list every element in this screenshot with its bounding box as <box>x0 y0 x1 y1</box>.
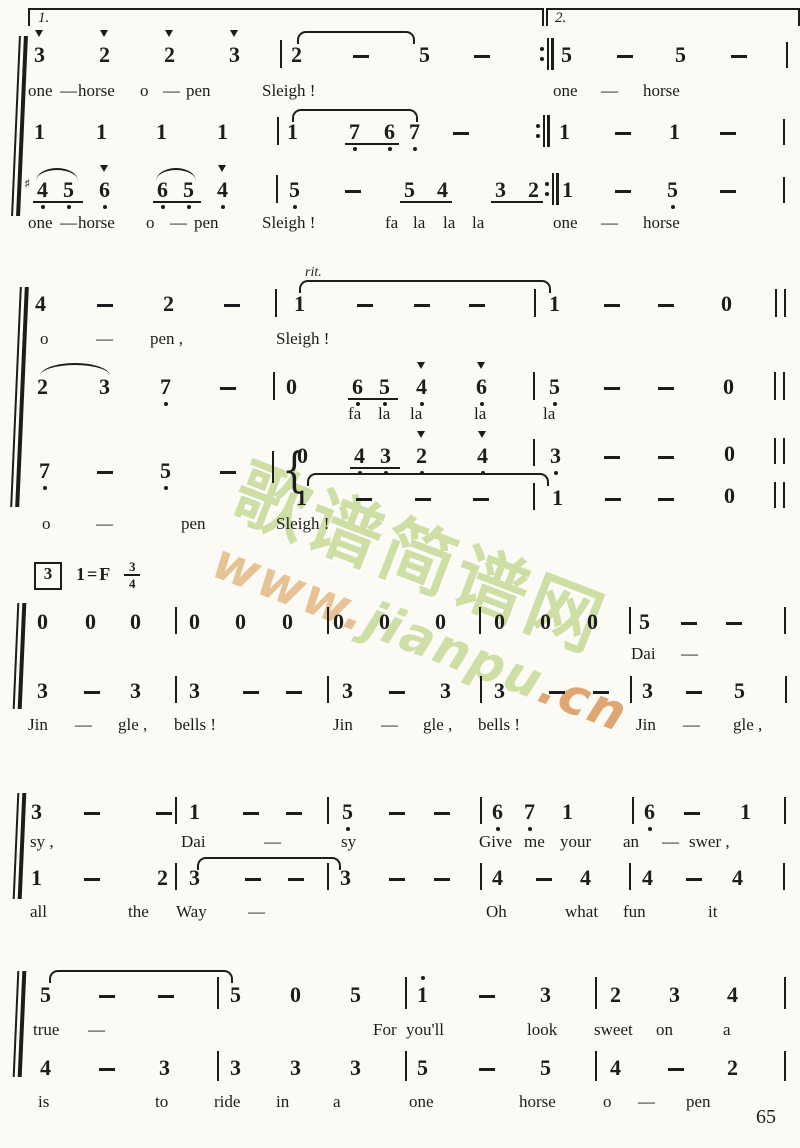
final-double-barline <box>775 289 786 317</box>
accent-mark <box>218 165 226 172</box>
sheet-page: { "page": {"number": "65", "background":… <box>0 0 800 1148</box>
accent-mark <box>417 431 425 438</box>
barline <box>480 676 482 703</box>
note-duration-dash <box>658 456 674 459</box>
barline <box>632 797 634 824</box>
repeat-barline <box>540 38 554 70</box>
note-duration-dash <box>434 812 450 815</box>
note-duration-dash <box>286 812 302 815</box>
note: 3 <box>98 376 111 398</box>
note: 4 <box>491 867 504 889</box>
barline <box>175 863 177 890</box>
note-duration-dash <box>686 878 702 881</box>
lyric: all <box>30 902 47 921</box>
note: 3 <box>158 1057 171 1079</box>
note: 7 <box>523 801 536 823</box>
lyric: gle , <box>118 715 147 734</box>
note-duration-dash <box>720 132 736 135</box>
lyric: — <box>638 1092 655 1111</box>
note-duration-dash <box>99 1068 115 1071</box>
note-duration-dash <box>353 55 369 58</box>
lyric: o <box>146 213 155 232</box>
note: 5 <box>378 376 391 398</box>
lyric: — <box>381 715 398 734</box>
lyric: to <box>155 1092 168 1111</box>
note-duration-dash <box>617 55 633 58</box>
lyric: a <box>333 1092 341 1111</box>
note: 5 <box>560 44 573 66</box>
note-duration-dash <box>479 995 495 998</box>
note: 4 <box>216 179 229 201</box>
lyric: Oh <box>486 902 507 921</box>
lyric: horse <box>519 1092 556 1111</box>
lyric: — <box>601 213 618 232</box>
note: 5 <box>733 680 746 702</box>
note-duration-dash <box>731 55 747 58</box>
note: 1 <box>558 121 571 143</box>
lyric: Jin <box>28 715 48 734</box>
note: 3 <box>341 680 354 702</box>
note: 1 <box>668 121 681 143</box>
note-duration-dash <box>658 304 674 307</box>
note: 3 <box>549 445 562 467</box>
note-duration-dash <box>720 190 736 193</box>
note-duration-dash <box>615 132 631 135</box>
accent-mark <box>230 30 238 37</box>
final-double-barline <box>774 482 785 508</box>
note-duration-dash <box>668 1068 684 1071</box>
note-duration-dash <box>345 190 361 193</box>
note: 3 <box>289 1057 302 1079</box>
note: 3 <box>36 680 49 702</box>
system-left-brace <box>10 287 20 507</box>
note: 5 <box>548 376 561 398</box>
score-canvas: 1.2.32232555one—horseo—penSleigh !one—ho… <box>0 0 800 1148</box>
note: 3 <box>668 984 681 1006</box>
note: 4 <box>476 445 489 467</box>
note: 6 <box>383 121 396 143</box>
note-duration-dash <box>473 498 489 501</box>
barline <box>217 1051 219 1081</box>
note-duration-dash <box>389 812 405 815</box>
accent-mark <box>417 362 425 369</box>
barline <box>783 863 785 890</box>
lyric: the <box>128 902 149 921</box>
lyric: la <box>413 213 425 232</box>
note: 0 <box>289 984 302 1006</box>
lyric: — <box>170 213 187 232</box>
note: 2 <box>36 376 49 398</box>
barline <box>405 1051 407 1081</box>
note: 5 <box>182 179 195 201</box>
barline <box>327 676 329 703</box>
note: 1 <box>216 121 229 143</box>
note-duration-dash <box>474 55 490 58</box>
barline <box>327 797 329 824</box>
note: 0 <box>722 376 735 398</box>
note: 4 <box>731 867 744 889</box>
lyric: Sleigh ! <box>276 514 329 533</box>
lyric: Sleigh ! <box>262 81 315 100</box>
eighth-note-beam <box>400 201 452 203</box>
note: 3 <box>188 680 201 702</box>
note-duration-dash <box>97 471 113 474</box>
barline <box>480 797 482 824</box>
system-left-brace <box>13 971 18 1077</box>
barline <box>272 451 274 483</box>
lyric: sy <box>341 832 356 851</box>
note-duration-dash <box>681 622 697 625</box>
tie-bracket <box>49 970 233 983</box>
note: 2 <box>726 1057 739 1079</box>
note: 2 <box>98 44 111 66</box>
barline <box>275 289 277 317</box>
lyric: me <box>524 832 545 851</box>
system-left-brace <box>11 36 19 216</box>
lyric: la <box>410 404 422 423</box>
lyric: — <box>264 832 281 851</box>
lyric: la <box>543 404 555 423</box>
barline <box>783 119 785 145</box>
note: 3 <box>30 801 43 823</box>
note-duration-dash <box>156 812 172 815</box>
lyric: la <box>378 404 390 423</box>
note: 5 <box>349 984 362 1006</box>
lyric: bells ! <box>174 715 216 734</box>
lyric: — <box>88 1020 105 1039</box>
note-duration-dash <box>84 691 100 694</box>
barline <box>175 607 177 634</box>
eighth-note-beam <box>345 143 399 145</box>
lyric: an <box>623 832 639 851</box>
barline <box>629 863 631 890</box>
lyric: — <box>163 81 180 100</box>
note: 7 <box>348 121 361 143</box>
tie-bracket <box>297 31 415 44</box>
barline <box>217 977 219 1009</box>
note: 3 <box>349 1057 362 1079</box>
lyric: la <box>474 404 486 423</box>
note: 0 <box>281 611 294 633</box>
note-duration-dash <box>99 995 115 998</box>
lyric: Dai <box>631 644 656 663</box>
note: 1 <box>188 801 201 823</box>
note: 4 <box>579 867 592 889</box>
note: 5 <box>666 179 679 201</box>
note-duration-dash <box>97 304 113 307</box>
note: 5 <box>638 611 651 633</box>
barline <box>273 372 275 400</box>
note-duration-dash <box>414 304 430 307</box>
lyric: pen <box>194 213 219 232</box>
note: 5 <box>403 179 416 201</box>
barline <box>786 42 788 68</box>
barline <box>784 797 786 824</box>
barline <box>534 289 536 317</box>
note-duration-dash <box>604 387 620 390</box>
lyric: pen , <box>150 329 183 348</box>
note: 3 <box>33 44 46 66</box>
lyric: gle , <box>423 715 452 734</box>
eighth-note-beam <box>350 467 400 469</box>
note-duration-dash <box>479 1068 495 1071</box>
note: 0 <box>188 611 201 633</box>
barline <box>784 977 786 1009</box>
note: 2 <box>527 179 540 201</box>
note: 4 <box>436 179 449 201</box>
lyric: — <box>601 81 618 100</box>
note: 4 <box>415 376 428 398</box>
barline <box>533 372 535 400</box>
note-duration-dash <box>220 471 236 474</box>
note-duration-dash <box>604 456 620 459</box>
accent-mark <box>100 30 108 37</box>
note: 2 <box>609 984 622 1006</box>
note-duration-dash <box>536 878 552 881</box>
tie-bracket <box>307 473 549 486</box>
barline <box>630 676 632 703</box>
lyric: is <box>38 1092 49 1111</box>
repeat-barline <box>536 115 550 147</box>
volta-1-label: 1. <box>38 11 49 26</box>
lyric: one <box>28 81 53 100</box>
note: 3 <box>188 867 201 889</box>
note: 1 <box>30 867 43 889</box>
barline <box>595 1051 597 1081</box>
note: 7 <box>159 376 172 398</box>
note: 2 <box>415 445 428 467</box>
barline <box>277 117 279 145</box>
note: 0 <box>296 445 309 467</box>
note: 5 <box>539 1057 552 1079</box>
note: 7 <box>408 121 421 143</box>
lyric: horse <box>78 213 115 232</box>
lyric: Sleigh ! <box>262 213 315 232</box>
eighth-note-beam <box>153 201 201 203</box>
note-duration-dash <box>288 878 304 881</box>
lyric: Sleigh ! <box>276 329 329 348</box>
lyric: fun <box>623 902 646 921</box>
lyric: — <box>662 832 679 851</box>
note: 1 <box>293 293 306 315</box>
system-left-brace <box>13 603 18 709</box>
note: 0 <box>84 611 97 633</box>
note-duration-dash <box>453 132 469 135</box>
lyric: gle , <box>733 715 762 734</box>
lyric: — <box>96 514 113 533</box>
note: 6 <box>98 179 111 201</box>
note: 1 <box>739 801 752 823</box>
note: 0 <box>129 611 142 633</box>
note: 3 <box>229 1057 242 1079</box>
lyric: what <box>565 902 598 921</box>
note-duration-dash <box>615 190 631 193</box>
note: 1 <box>561 801 574 823</box>
note-duration-dash <box>84 812 100 815</box>
note: 4♯ <box>36 179 49 201</box>
accent-mark <box>100 165 108 172</box>
note: 0 <box>720 293 733 315</box>
note: 1 <box>551 487 564 509</box>
note: 0 <box>285 376 298 398</box>
repeat-barline <box>545 173 559 205</box>
lyric: For <box>373 1020 397 1039</box>
lyric: o <box>140 81 149 100</box>
lyric: you'll <box>406 1020 444 1039</box>
note-duration-dash <box>389 878 405 881</box>
note: 2 <box>156 867 169 889</box>
note: 4 <box>726 984 739 1006</box>
note: 1 <box>33 121 46 143</box>
lyric: o <box>42 514 51 533</box>
note: 6 <box>351 376 364 398</box>
barline <box>175 797 177 824</box>
lyric: Dai <box>181 832 206 851</box>
note: 4 <box>641 867 654 889</box>
note-duration-dash <box>593 691 609 694</box>
lyric: — <box>683 715 700 734</box>
note-duration-dash <box>389 691 405 694</box>
note: 1 <box>416 984 429 1006</box>
lyric: your <box>560 832 591 851</box>
note: 1 <box>286 121 299 143</box>
lyric: — <box>96 329 113 348</box>
lyric: one <box>409 1092 434 1111</box>
volta-bracket <box>546 8 800 26</box>
note: 2 <box>163 44 176 66</box>
lyric: horse <box>643 81 680 100</box>
note: 5 <box>159 460 172 482</box>
lyric: pen <box>181 514 206 533</box>
note: 3 <box>539 984 552 1006</box>
lyric: look <box>527 1020 557 1039</box>
barline <box>175 676 177 703</box>
sharp-icon: ♯ <box>24 178 30 191</box>
note: 3 <box>379 445 392 467</box>
note: 5 <box>288 179 301 201</box>
barline <box>533 483 535 510</box>
accent-mark <box>165 30 173 37</box>
barline <box>783 177 785 203</box>
barline <box>479 607 481 634</box>
note: 5 <box>62 179 75 201</box>
barline <box>785 676 787 703</box>
eighth-note-beam <box>348 398 398 400</box>
note-duration-dash <box>686 691 702 694</box>
note-duration-dash <box>469 304 485 307</box>
note: 4 <box>39 1057 52 1079</box>
lyric: fa <box>348 404 361 423</box>
tie-bracket <box>299 280 551 293</box>
lyric: — <box>75 715 92 734</box>
note-duration-dash <box>356 498 372 501</box>
note: 1 <box>548 293 561 315</box>
note-duration-dash <box>243 812 259 815</box>
note: 6 <box>491 801 504 823</box>
note: 2 <box>290 44 303 66</box>
note-duration-dash <box>245 878 261 881</box>
note: 4 <box>609 1057 622 1079</box>
lyric: ride <box>214 1092 240 1111</box>
note: 1 <box>95 121 108 143</box>
lyric: la <box>443 213 455 232</box>
lyric: Jin <box>636 715 656 734</box>
barline <box>784 1051 786 1081</box>
lyric: — <box>248 902 265 921</box>
page-number: 65 <box>756 1106 776 1129</box>
barline <box>533 439 535 466</box>
note-duration-dash <box>658 387 674 390</box>
note-duration-dash <box>243 691 259 694</box>
note: 0 <box>539 611 552 633</box>
tie-bracket <box>197 857 341 870</box>
accent-mark <box>477 362 485 369</box>
barline <box>595 977 597 1009</box>
lyric: true <box>33 1020 59 1039</box>
note: 0 <box>36 611 49 633</box>
note: 0 <box>434 611 447 633</box>
note: 0 <box>586 611 599 633</box>
barline <box>629 607 631 634</box>
lyric: Way <box>176 902 207 921</box>
note-duration-dash <box>434 878 450 881</box>
note: 0 <box>234 611 247 633</box>
note: 2 <box>162 293 175 315</box>
barline <box>405 977 407 1009</box>
volta-2-label: 2. <box>555 11 566 26</box>
lyric: in <box>276 1092 289 1111</box>
note: 0 <box>378 611 391 633</box>
note: 3 <box>129 680 142 702</box>
note-duration-dash <box>357 304 373 307</box>
note: 1 <box>561 179 574 201</box>
lyric: pen <box>186 81 211 100</box>
note-duration-dash <box>605 498 621 501</box>
note: 0 <box>723 485 736 507</box>
lyric: sy , <box>30 832 54 851</box>
lyric: one <box>553 213 578 232</box>
note: 1 <box>295 487 308 509</box>
note: 6 <box>643 801 656 823</box>
lyric: one <box>28 213 53 232</box>
eighth-note-beam <box>491 201 543 203</box>
accent-mark <box>478 431 486 438</box>
note-duration-dash <box>549 691 565 694</box>
note: 5 <box>39 984 52 1006</box>
note-duration-dash <box>286 691 302 694</box>
note-duration-dash <box>415 498 431 501</box>
note: 6 <box>475 376 488 398</box>
note: 6 <box>156 179 169 201</box>
note: 4 <box>353 445 366 467</box>
barline <box>280 40 282 68</box>
note-duration-dash <box>84 878 100 881</box>
note-duration-dash <box>726 622 742 625</box>
volta-bracket <box>28 8 544 26</box>
note: 5 <box>416 1057 429 1079</box>
lyric: a <box>723 1020 731 1039</box>
note: 3 <box>641 680 654 702</box>
lyric: it <box>708 902 717 921</box>
lyric: la <box>472 213 484 232</box>
barline <box>480 863 482 890</box>
lyric: horse <box>643 213 680 232</box>
lyric: horse <box>78 81 115 100</box>
barline <box>327 863 329 890</box>
lyric: — <box>681 644 698 663</box>
note-duration-dash <box>224 304 240 307</box>
note: 5 <box>418 44 431 66</box>
